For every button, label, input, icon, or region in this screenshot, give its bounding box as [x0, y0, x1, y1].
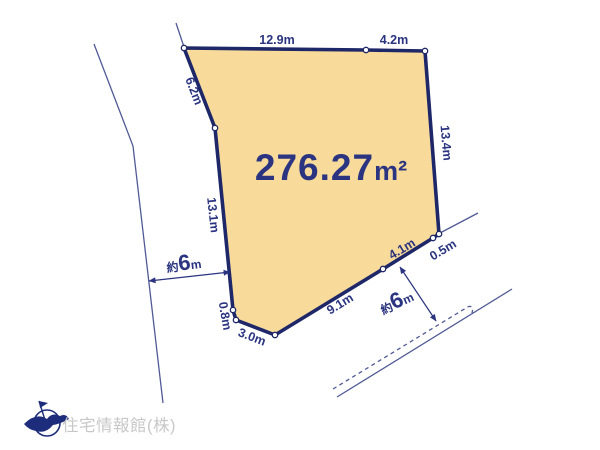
vertex-dot [212, 125, 217, 130]
plot-canvas: 276.27m² 12.9m 4.2m 6.2m 13.4m 13.1m 0.8… [0, 0, 600, 450]
left-road-width-label: 約6m [165, 248, 203, 277]
vertex-dot [181, 45, 186, 50]
edge-label-13-1: 13.1m [204, 197, 222, 234]
bottom-right-road-line [337, 289, 512, 397]
area-value: 276.27 [255, 147, 374, 188]
vertex-dot [380, 266, 385, 271]
left-road-width-unit: m [190, 257, 202, 272]
edge-label-13-4: 13.4m [437, 125, 454, 162]
left-road-line [94, 44, 163, 403]
vertex-dot [363, 47, 368, 52]
edge-label-4-2: 4.2m [380, 33, 409, 47]
company-name: 住宅情報館(株) [62, 416, 176, 435]
vertex-dot [272, 332, 277, 337]
logo-flag-icon [39, 401, 48, 408]
right-boundary-line [440, 213, 478, 233]
area-unit: m² [374, 156, 407, 186]
edge-label-12-9: 12.9m [259, 33, 294, 47]
vertex-dot [436, 231, 441, 236]
vertex-dot [430, 235, 435, 240]
top-left-boundary-tick [176, 23, 184, 47]
land-plot-diagram: 276.27m² 12.9m 4.2m 6.2m 13.4m 13.1m 0.8… [0, 0, 600, 450]
right-road-width-label: 約6m [375, 282, 417, 319]
vertex-dot [422, 48, 427, 53]
road-centerline-dashed [333, 306, 473, 389]
